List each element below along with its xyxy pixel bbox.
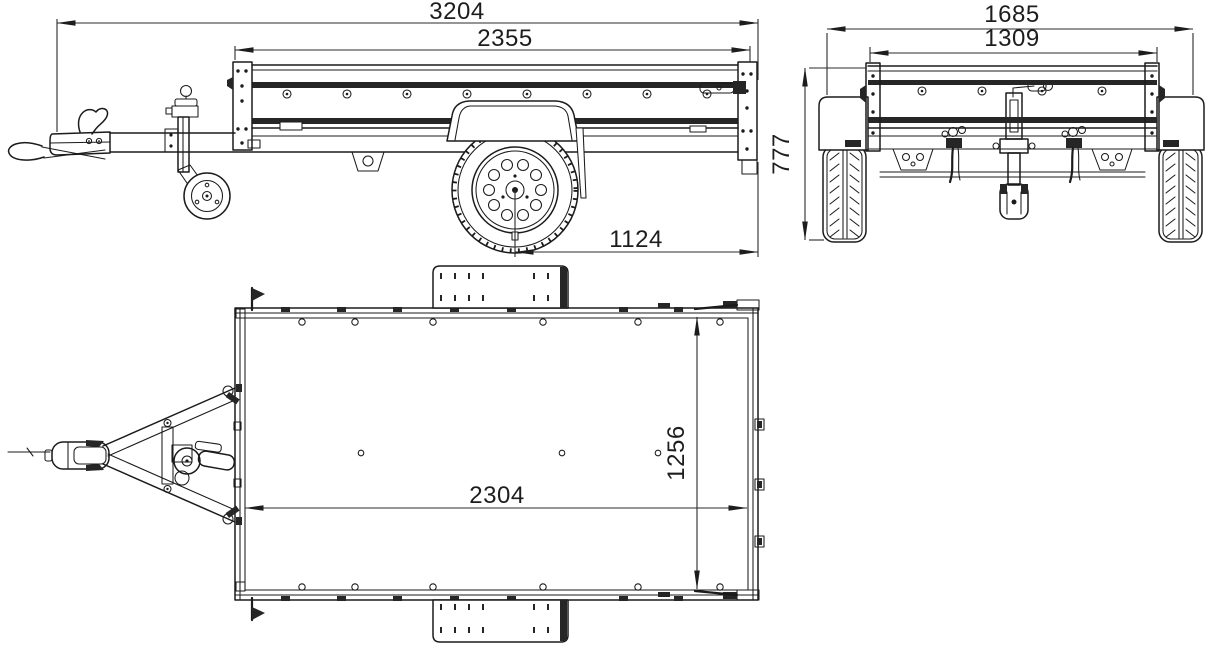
dim-overall-width-value: 1685 xyxy=(984,1,1039,28)
top-fender-lower xyxy=(433,600,568,642)
jockey-wheel-rear xyxy=(993,81,1053,219)
tailgate-latch-right xyxy=(1062,127,1086,183)
top-view: 2304 1256 xyxy=(8,266,764,642)
drawing-canvas: 3204 2355 1124 xyxy=(0,0,1211,650)
support-bracket xyxy=(352,152,384,171)
rear-view: 1685 1309 777 xyxy=(768,1,1204,242)
dim-overall-length-value: 3204 xyxy=(429,0,484,25)
front-latch-bottom xyxy=(223,506,242,525)
front-latch-top xyxy=(223,384,242,404)
rear-fender-left xyxy=(819,97,868,150)
box-front-post xyxy=(227,62,252,150)
dim-axle-to-rear-value: 1124 xyxy=(609,226,663,253)
floor-rivets xyxy=(299,319,723,590)
hinge-tabs xyxy=(281,307,683,601)
dim-floor-width: 1256 xyxy=(663,317,697,589)
dim-floor-width-value: 1256 xyxy=(663,425,690,480)
dim-floor-length: 2304 xyxy=(245,482,747,509)
a-frame-drawbar xyxy=(103,388,235,522)
dim-box-length-value: 2355 xyxy=(477,25,532,52)
dim-inner-width: 1309 xyxy=(870,25,1157,62)
side-view: 3204 2355 1124 xyxy=(9,0,758,257)
safety-cable xyxy=(9,143,105,160)
dim-box-length: 2355 xyxy=(235,25,750,62)
dim-inner-width-value: 1309 xyxy=(984,25,1039,52)
coupler-side xyxy=(50,109,110,155)
top-fender-upper xyxy=(433,266,568,308)
trailer-technical-drawing: 3204 2355 1124 xyxy=(0,0,1211,650)
rear-wheel-left xyxy=(823,146,866,242)
dim-height-value: 777 xyxy=(768,133,795,175)
rear-wheel-right xyxy=(1159,146,1202,242)
tailgate-latch-left xyxy=(942,127,966,183)
drawbar-beam xyxy=(110,133,738,152)
coupler-top xyxy=(45,440,109,471)
dim-overall-length: 3204 xyxy=(57,0,758,132)
marker-light-front-top xyxy=(252,288,265,310)
jockey-wheel-top xyxy=(172,441,235,485)
dim-floor-length-value: 2304 xyxy=(469,482,524,509)
rear-fender-right xyxy=(1157,97,1204,150)
rear-chassis xyxy=(866,136,1159,177)
safety-cable-top xyxy=(8,448,50,456)
panel-rivets xyxy=(283,90,711,98)
marker-light-front-bottom xyxy=(252,598,265,620)
rear-edge-tabs xyxy=(755,419,764,547)
